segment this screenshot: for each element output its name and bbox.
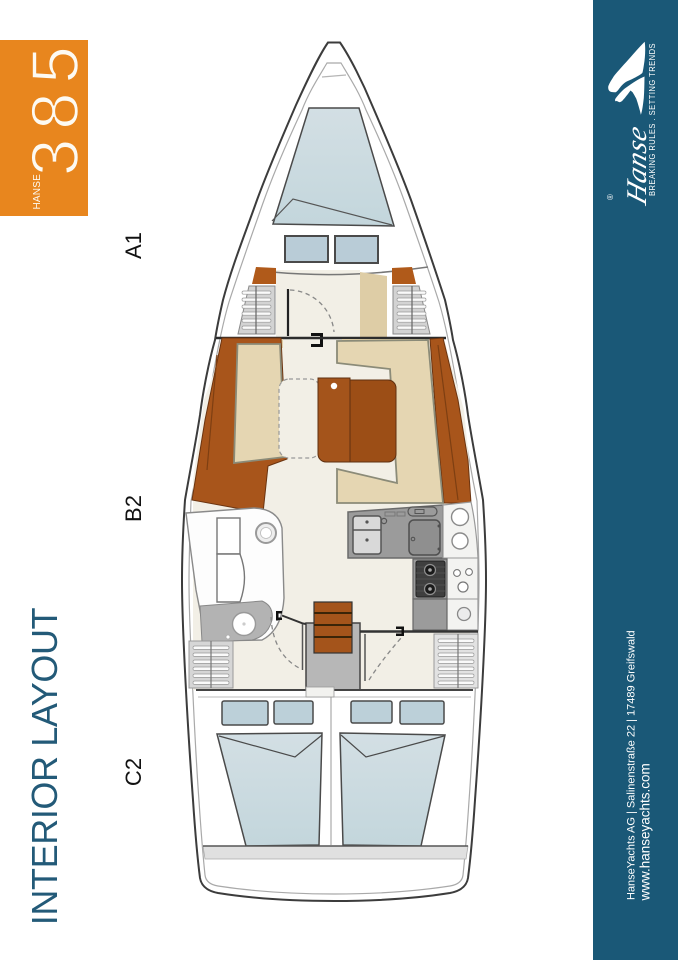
svg-text:HanseYachts AG | Salinenstraße: HanseYachts AG | Salinenstraße 22 | 1748… — [626, 630, 638, 900]
svg-text:B2: B2 — [121, 495, 146, 522]
svg-text:www.hanseyachts.com: www.hanseyachts.com — [638, 763, 653, 901]
svg-text:INTERIOR LAYOUT: INTERIOR LAYOUT — [24, 607, 65, 925]
svg-text:HANSE: HANSE — [32, 174, 43, 210]
svg-text:A1: A1 — [121, 232, 146, 259]
svg-text:BREAKING RULES . SETTING TREND: BREAKING RULES . SETTING TRENDS — [648, 43, 657, 196]
svg-text:C2: C2 — [121, 758, 146, 786]
svg-text:385: 385 — [18, 37, 93, 176]
svg-text:®: ® — [606, 194, 615, 200]
